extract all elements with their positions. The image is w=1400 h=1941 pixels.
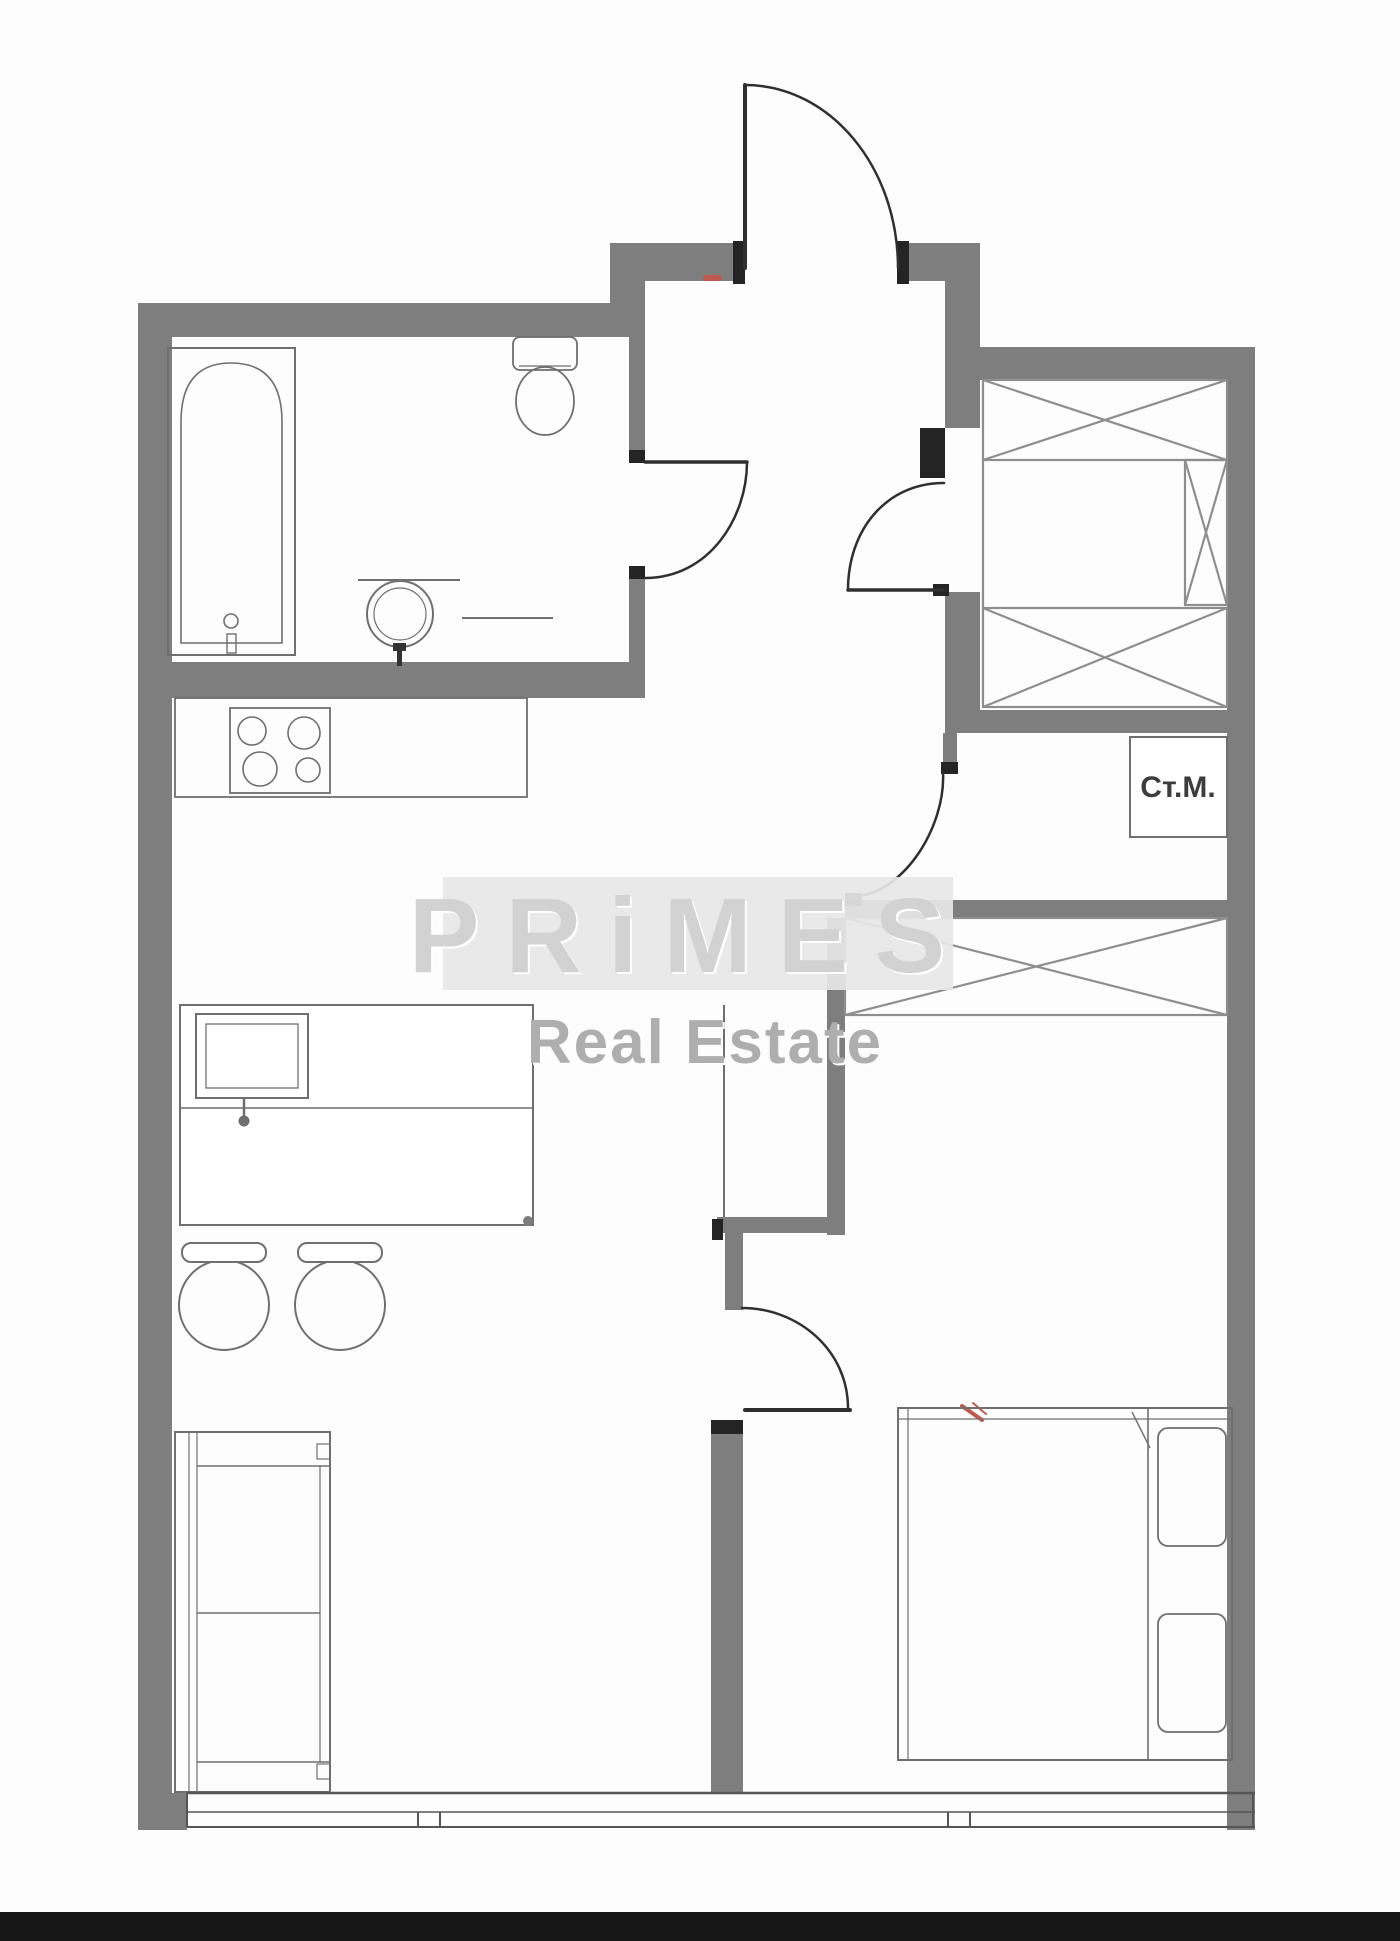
bathroom-top-wall: [138, 303, 645, 337]
chair-left-seat: [182, 1243, 266, 1262]
sink-faucet-base: [393, 643, 406, 651]
corridor-left-jamb: [712, 1219, 723, 1240]
bedroom-door-jamb: [711, 1420, 743, 1434]
bathroom-right-wall-lower: [629, 578, 645, 662]
floor-plan-image: Ст.М.: [0, 0, 1400, 1941]
bathroom-bottom-wall: [140, 662, 645, 698]
bathroom-door-jamb-top: [629, 450, 645, 463]
closet-bottom-wall: [980, 710, 1253, 733]
chair-right-seat: [298, 1243, 382, 1262]
entrance-wall-right-corner: [898, 243, 980, 281]
entrance-wall-riser: [610, 243, 645, 337]
floor-plan-svg: Ст.М.: [0, 0, 1400, 1941]
left-outer-wall: [138, 303, 172, 1830]
sink-faucet-stem: [397, 651, 402, 666]
washing-machine-label: Ст.М.: [1140, 771, 1215, 804]
bedroom-divider-wall-lower: [711, 1423, 743, 1793]
bottom-photo-edge-bar: [0, 1912, 1400, 1941]
watermark-brand: PRiMES: [409, 877, 971, 995]
bathroom-right-wall-upper: [629, 337, 645, 462]
closet-top-wall: [945, 347, 1253, 380]
bedroom-divider-wall-upper: [725, 1233, 743, 1310]
island-top: [180, 1005, 533, 1225]
bathroom-door-jamb-bottom: [629, 566, 645, 579]
island-faucet-knob: [239, 1116, 249, 1126]
hallway-right-wall-lower: [945, 592, 980, 733]
bottom-left-corner-wall: [138, 1793, 187, 1830]
entrance-wall-left: [645, 243, 742, 281]
washing-machine-niche: Ст.М.: [1130, 737, 1227, 837]
island-corner-dot: [523, 1216, 533, 1226]
corridor-bottom-wall: [717, 1217, 845, 1233]
closet-door-jamb-top: [920, 428, 945, 478]
watermark-subtitle: Real Estate: [527, 1008, 883, 1077]
